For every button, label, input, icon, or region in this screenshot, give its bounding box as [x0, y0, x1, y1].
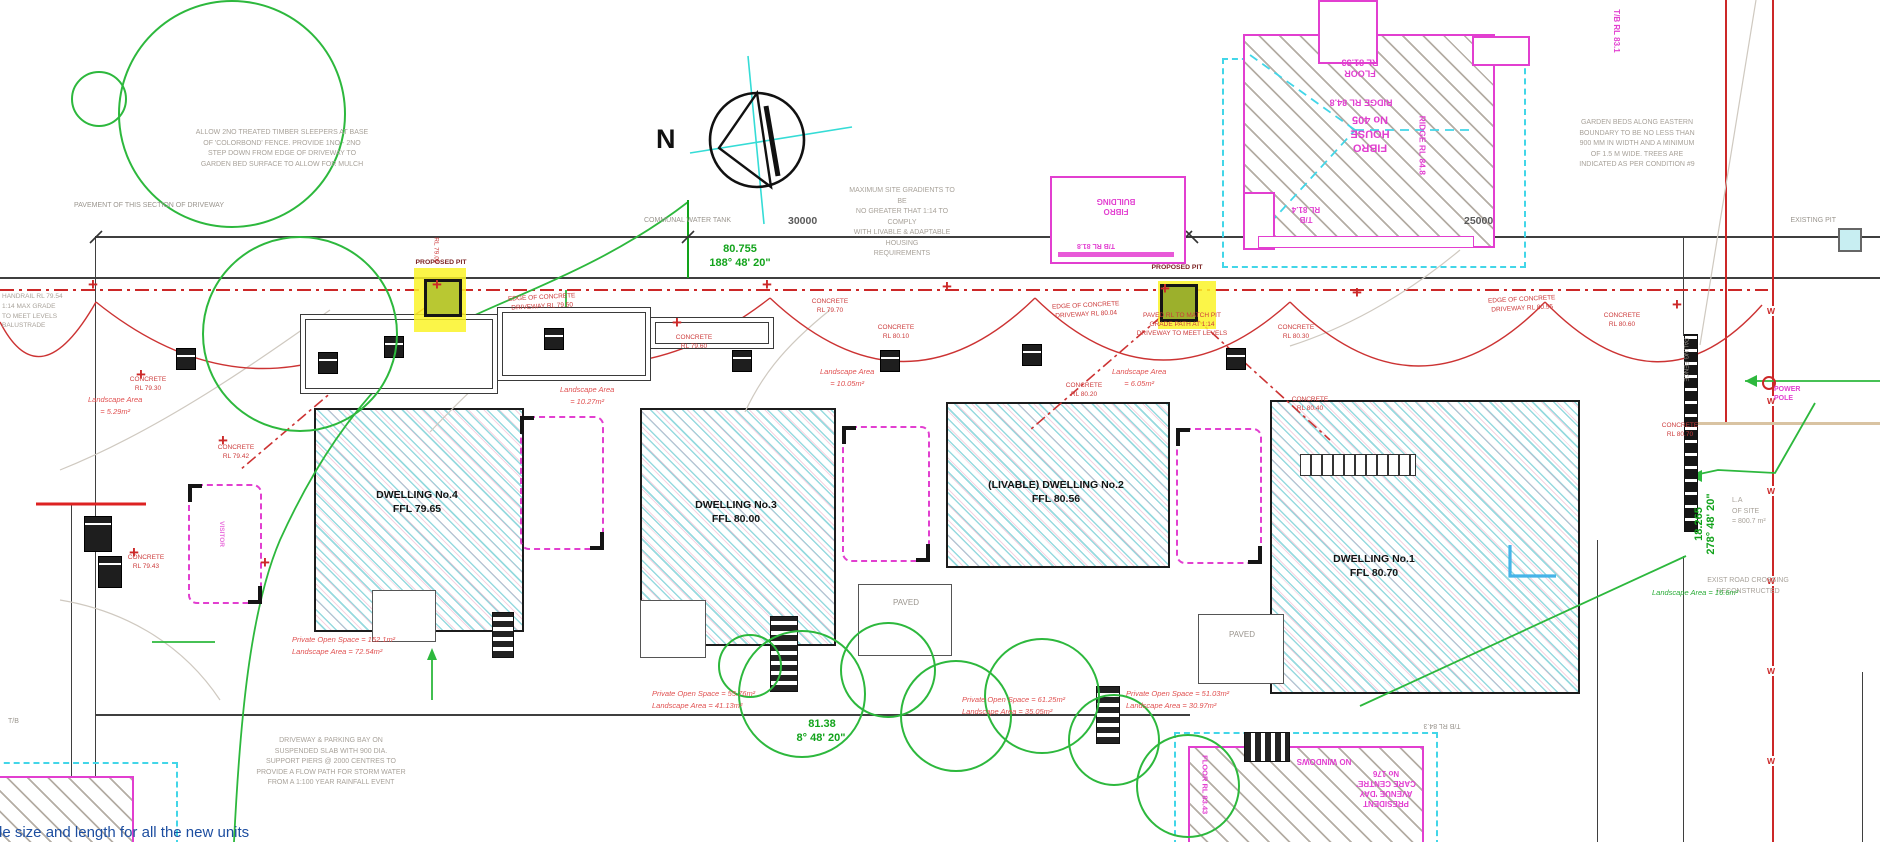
paved-area-2 — [1198, 614, 1284, 684]
service-pit-marker — [880, 350, 900, 372]
survey-cross-marker: + — [1352, 288, 1362, 298]
note-driveway-section: PAVEMENT OF THIS SECTION OF DRIVEWAY — [74, 202, 224, 209]
concrete-level-annotation: CONCRETERL 79.70 — [800, 298, 860, 316]
fibro-floor-l2: RL 81.33 — [1324, 56, 1396, 67]
dimension-ticks — [90, 231, 1856, 243]
power-pole-l2: POLE — [1774, 395, 1820, 404]
service-pit-marker — [84, 516, 112, 552]
daycare-name: PRESIDENT AVENUE 'DAY CARE CENTRE' No 17… — [1348, 768, 1424, 808]
north-compass — [690, 56, 852, 224]
landscape-area-east: Landscape Area = 16.6m² — [1652, 588, 1738, 597]
landscape-area-2: Landscape Area= 10.27m² — [560, 384, 614, 408]
fibro-house-tb-rl: T/B RL 81.4 — [1278, 204, 1334, 224]
carport-bay-1 — [520, 416, 604, 550]
dwelling-1-name: DWELLING No.1 — [1294, 552, 1454, 566]
rear-boundary-length: 81.38 — [792, 718, 852, 730]
note-sleepers: ALLOW 2NO TREATED TIMBER SLEEPERS AT BAS… — [190, 128, 374, 170]
patio-rect-2 — [640, 600, 706, 658]
survey-cross-marker: + — [1160, 284, 1170, 294]
daycare-floor-rl: FLOOR RL 83.43 — [1200, 740, 1209, 830]
concrete-level-annotation: CONCRETERL 80.10 — [866, 324, 926, 342]
survey-cross-marker: + — [432, 280, 442, 290]
fibro-house-porch — [1318, 0, 1378, 64]
note-gradients: MAXIMUM SITE GRADIENTS TO BENO GREATER T… — [844, 186, 960, 260]
tree-canopy — [202, 236, 398, 432]
fibro-house-name-l2: HOUSE — [1322, 126, 1418, 140]
note-garden-beds: GARDEN BEDS ALONG EASTERNBOUNDARY TO BE … — [1564, 118, 1710, 171]
tb-marker-sw: T/B — [8, 718, 19, 725]
concrete-level-annotation: CONCRETERL 79.43 — [116, 554, 176, 572]
existing-pit — [1838, 228, 1862, 252]
dwelling-4-name: DWELLING No.4 — [332, 488, 502, 502]
service-pit-marker — [1226, 348, 1246, 370]
existing-pit-label: EXISTING PIT — [1778, 217, 1836, 224]
survey-cross-marker: + — [672, 318, 682, 328]
fibro-house-wing — [1472, 36, 1530, 66]
dwelling-2-name: (LIVABLE) DWELLING No.2 — [950, 478, 1162, 492]
area-schedule-d3: Private Open Space = 55.76m²Landscape Ar… — [652, 688, 755, 712]
dwelling-4-ffl: FFL 79.65 — [332, 502, 502, 516]
concrete-level-annotation: CONCRETERL 79.30 — [118, 376, 178, 394]
fibro-floor-l1: FLOOR — [1324, 67, 1396, 78]
fibro-house-name-l1: FIBRO — [1322, 140, 1418, 154]
pergola-post-row — [1300, 454, 1416, 476]
lot-width-25000: 25000 — [1464, 215, 1493, 227]
fibro-building-awning — [1058, 252, 1174, 257]
carport-bay-3 — [1176, 428, 1262, 564]
rear-boundary-bearing: 8° 48' 20" — [776, 732, 866, 744]
landscape-area-1: Landscape Area= 5.29m² — [88, 394, 142, 418]
paved-label-2: PAVED — [1212, 630, 1272, 639]
daycare-name-l3: CARE CENTRE' — [1348, 778, 1424, 788]
concrete-level-annotation: CONCRETERL 79.42 — [206, 444, 266, 462]
dwelling-3-label: DWELLING No.3 FFL 80.00 — [650, 498, 822, 526]
fibro-garage-tb-rl: T/B RL 83.1 — [1611, 0, 1621, 69]
water-main-marker: W — [1766, 306, 1776, 316]
visitor-bay-label: VISITOR — [217, 521, 225, 547]
area-schedule-d2: Private Open Space = 61.25m²Landscape Ar… — [962, 694, 1065, 718]
dwelling-2-ffl: FFL 80.56 — [950, 492, 1162, 506]
carport-bay-2 — [842, 426, 930, 562]
fibro-tb-l2: RL 81.4 — [1278, 204, 1334, 214]
concrete-level-annotation: CONCRETERL 80.20 — [1054, 382, 1114, 400]
daycare-name-l2: AVENUE 'DAY — [1348, 788, 1424, 798]
survey-cross-marker: + — [762, 280, 772, 290]
note-handrail: HANDRAIL RL 79.541:14 MAX GRADETO MEET L… — [2, 292, 94, 331]
fibro-building-name: FIBRO BUILDING — [1076, 196, 1156, 216]
fibro-tb-l1: T/B — [1278, 214, 1334, 224]
survey-cross-marker: + — [942, 282, 952, 292]
grate-hatch-marker — [492, 612, 514, 658]
tree-canopy — [71, 71, 127, 127]
fibro-building-name-l1: FIBRO — [1076, 206, 1156, 216]
service-pit-marker — [176, 348, 196, 370]
concrete-level-annotation: CONCRETERL 80.70 — [1650, 422, 1710, 440]
fibro-building-footprint — [1050, 176, 1186, 264]
note-site-area: L.AOF SITE= 800.7 m² — [1732, 496, 1796, 528]
concrete-level-annotation: CONCRETERL 79.60 — [664, 334, 724, 352]
survey-cross-marker: + — [1672, 300, 1682, 310]
concrete-level-annotation: CONCRETERL 80.40 — [1280, 396, 1340, 414]
proposed-pit-2-label: PROPOSED PIT — [1140, 264, 1214, 271]
front-boundary-bearing: 188° 48' 20" — [688, 257, 792, 269]
fibro-house-ridge-rl: RIDGE RL 84.8 — [1306, 96, 1416, 107]
service-pit-marker — [1022, 344, 1042, 366]
fibro-house-verandah — [1258, 236, 1474, 248]
visitor-parking-bay: VISITOR — [188, 484, 262, 604]
area-schedule-d4: Private Open Space = 152.1m²Landscape Ar… — [292, 634, 395, 658]
landscape-area-3: Landscape Area= 10.05m² — [820, 366, 874, 390]
fibro-building-rl: T/B RL 81.8 — [1064, 240, 1128, 249]
dwelling-4-label: DWELLING No.4 FFL 79.65 — [332, 488, 502, 516]
tree-canopy — [1136, 734, 1240, 838]
communal-water-tank-label: COMMUNAL WATER TANK — [644, 217, 731, 224]
fibro-house-name-l3: No 405 — [1322, 112, 1418, 126]
dwelling-3-ffl: FFL 80.00 — [650, 512, 822, 526]
water-main-marker: W — [1766, 486, 1776, 496]
service-pit-marker — [544, 328, 564, 350]
power-pole-label: POWER POLE — [1774, 386, 1820, 404]
east-boundary-dim: 18.265 278° 48' 20" — [1693, 469, 1717, 579]
water-tank-slab-2 — [497, 307, 651, 381]
note-suspended-slab: DRIVEWAY & PARKING BAY ONSUSPENDED SLAB … — [236, 736, 426, 789]
concrete-level-annotation: PAVED RL TO MATCH PITGRADE PATH AT 1:14D… — [1124, 312, 1240, 338]
downpipe-line — [1510, 545, 1556, 576]
fibro-house-ridge-side-rl: RIDGE RL 84.8 — [1417, 103, 1428, 187]
dwelling-3-name: DWELLING No.3 — [650, 498, 822, 512]
document-caption: de size and length for all the new units — [0, 824, 249, 841]
concrete-level-annotation: RL 79.05 — [431, 223, 440, 277]
survey-cross-marker: + — [88, 280, 98, 290]
paved-label-1: PAVED — [876, 598, 936, 607]
east-boundary-bearing: 278° 48' 20" — [1705, 469, 1717, 579]
lot-width-30000: 30000 — [788, 215, 817, 227]
water-main-marker: W — [1766, 756, 1776, 766]
concrete-level-annotation: CONCRETERL 80.30 — [1266, 324, 1326, 342]
dwelling-1-ffl: FFL 80.70 — [1294, 566, 1454, 580]
water-main-marker: W — [1766, 666, 1776, 676]
daycare-name-l1: PRESIDENT — [1348, 798, 1424, 808]
tree-canopy — [118, 0, 346, 228]
front-boundary-length: 80.755 — [702, 243, 778, 255]
area-schedule-d1: Private Open Space = 51.03m²Landscape Ar… — [1126, 688, 1229, 712]
service-pit-marker — [732, 350, 752, 372]
fibro-house-floor-rl: FLOOR RL 81.33 — [1324, 56, 1396, 79]
north-label: N — [656, 124, 676, 155]
landscape-area-4: Landscape Area= 6.05m² — [1112, 366, 1166, 390]
proposed-pit-1-label: PROPOSED PIT — [404, 259, 478, 266]
daycare-tb-rl: T/B RL 84.3 — [1414, 722, 1470, 729]
fibro-house-name: FIBRO HOUSE No 405 — [1322, 112, 1418, 153]
proposed-pit-1 — [424, 279, 462, 317]
daycare-no-windows: NO WINDOWS — [1282, 756, 1366, 766]
dwelling-1-label: DWELLING No.1 FFL 80.70 — [1294, 552, 1454, 580]
survey-cross-marker: + — [260, 558, 270, 568]
power-pole-l1: POWER — [1774, 386, 1820, 395]
fibro-building-name-l2: BUILDING — [1076, 196, 1156, 206]
paling-fence-label: PALING FENCE — [1682, 338, 1688, 398]
east-boundary-length: 18.265 — [1693, 469, 1705, 579]
dwelling-2-label: (LIVABLE) DWELLING No.2 FFL 80.56 — [950, 478, 1162, 506]
concrete-level-annotation: CONCRETERL 80.60 — [1592, 312, 1652, 330]
daycare-name-l4: No 176 — [1348, 768, 1424, 778]
site-plan-canvas: DWELLING No.4 FFL 79.65 DWELLING No.3 FF… — [0, 0, 1880, 842]
